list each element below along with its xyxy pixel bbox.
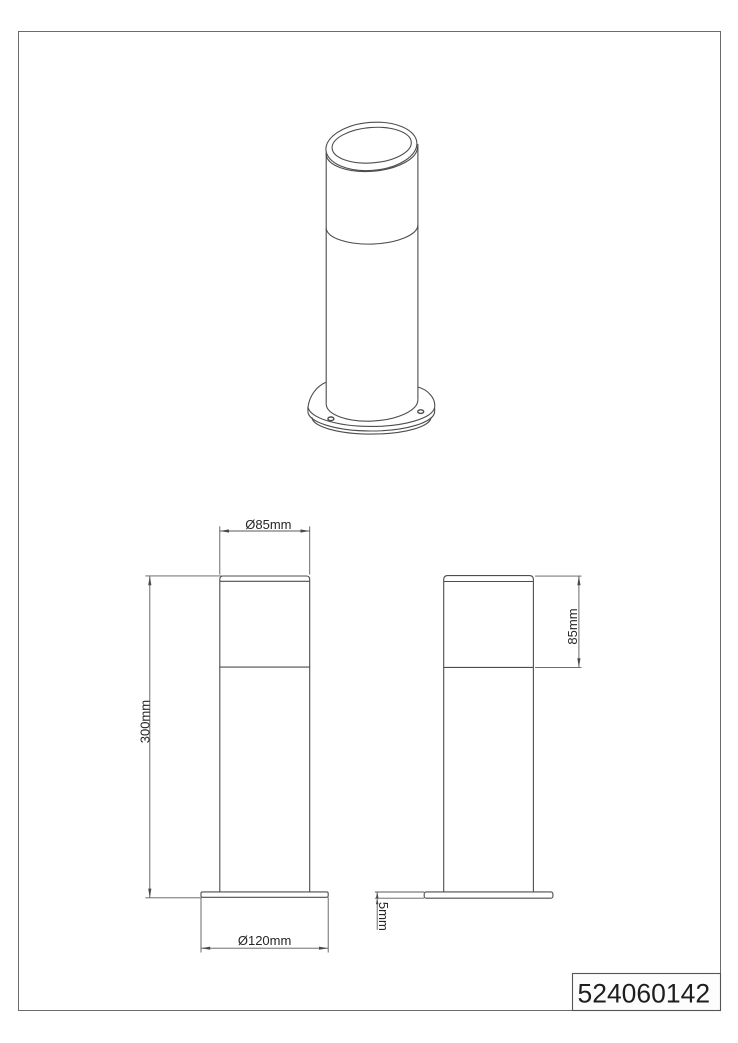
svg-text:Ø120mm: Ø120mm xyxy=(238,933,291,948)
svg-text:300mm: 300mm xyxy=(137,700,152,743)
svg-text:5mm: 5mm xyxy=(376,902,391,931)
svg-text:524060142: 524060142 xyxy=(577,979,710,1009)
svg-text:Ø85mm: Ø85mm xyxy=(245,517,291,532)
svg-text:85mm: 85mm xyxy=(565,608,580,644)
